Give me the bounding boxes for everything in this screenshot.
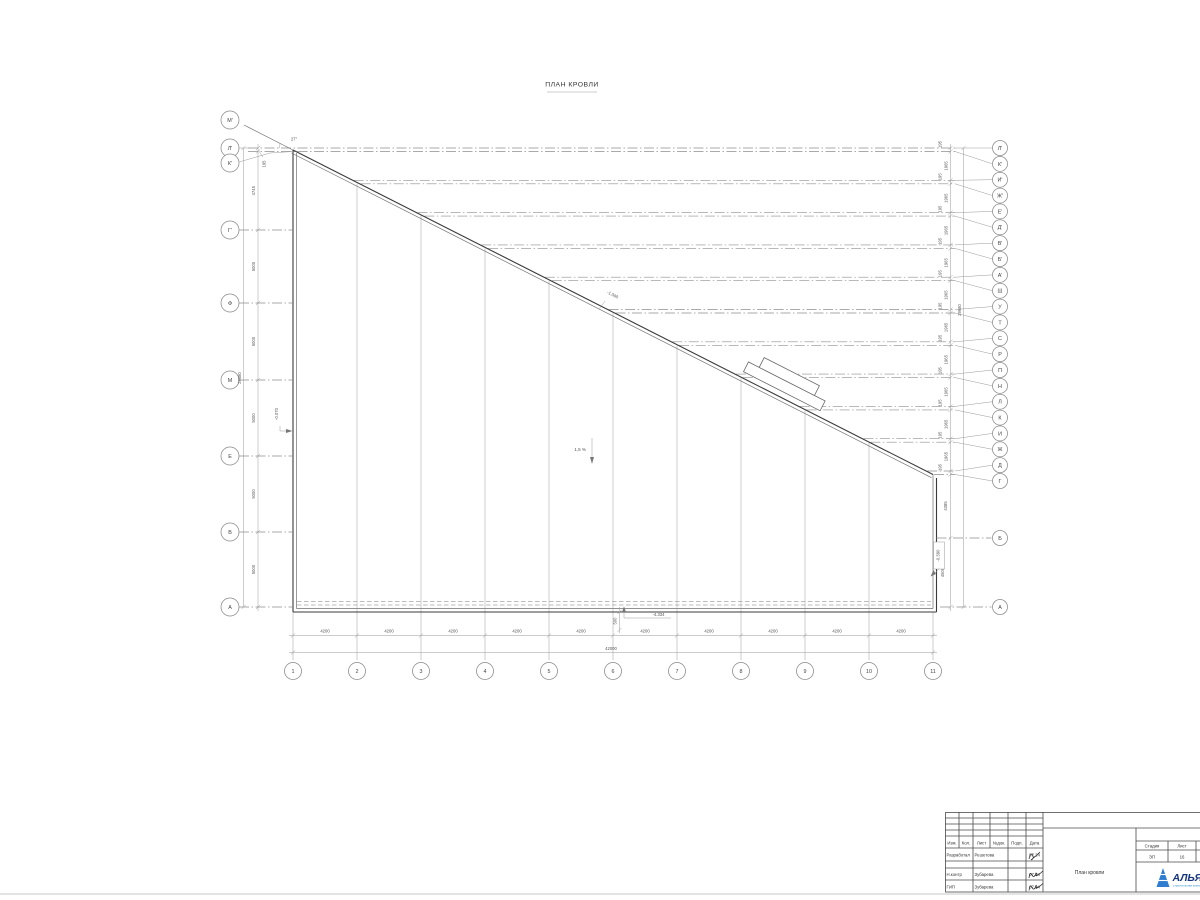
axis-circle-right-label: Л [998, 400, 1002, 406]
axis-leader [955, 433, 993, 438]
axis-circle-bottom-label: 6 [612, 669, 615, 675]
axis-circle-right-label: Ж' [997, 193, 1003, 199]
dim-label: 195 [938, 270, 943, 278]
dim-label: 5000 [251, 489, 256, 499]
dim-label: 4200 [768, 629, 778, 634]
dim-label: 4200 [704, 629, 714, 634]
axis-circle-right-label: С [998, 336, 1002, 342]
dim-label: 1965 [944, 322, 949, 332]
dim-label: 5000 [251, 261, 256, 271]
tb-name-ncontrol: Зубарева [975, 872, 995, 877]
dim-label: 1965 [944, 193, 949, 203]
axis-circle-right-label: П [998, 368, 1002, 374]
axis-leader [955, 410, 993, 418]
tb-name-gip: Зубарева [975, 885, 995, 890]
axis-circle-bottom-label: 8 [740, 669, 743, 675]
dim-label: 195 [938, 334, 943, 342]
dim-label: 4745 [251, 185, 256, 195]
axis-circle-bottom-label: 3 [420, 669, 423, 675]
elevation-arrow [622, 607, 626, 613]
axis-m-prime-leader [244, 125, 293, 150]
axis-leader [955, 180, 993, 181]
dim-label: 1965 [944, 290, 949, 300]
axis-circle-left-label: Л' [228, 146, 233, 152]
axis-leader [955, 216, 993, 227]
dim-label: 195 [262, 160, 267, 168]
dim-label: 1965 [944, 451, 949, 461]
axis-circle-left-label: Ф [228, 301, 232, 307]
dim-label: 195 [938, 205, 943, 213]
axis-circle-right-label: Б' [998, 257, 1003, 263]
tb-role-gip: ГИП [947, 885, 956, 890]
page-title: ПЛАН КРОВЛИ [545, 82, 599, 89]
axis-leader [955, 281, 993, 291]
axis-leader [239, 152, 293, 163]
dim-label: 1965 [944, 225, 949, 235]
elevation-arrow [286, 429, 293, 433]
axis-circle-left-label: В [228, 530, 232, 536]
axis-leader [955, 378, 993, 386]
dim-label: 4200 [576, 629, 586, 634]
dim-label: 4200 [320, 629, 330, 634]
tb-col-ndok: №док. [993, 841, 1006, 846]
dim-label: 4200 [512, 629, 522, 634]
dim-label: 5000 [251, 336, 256, 346]
angle-arc [279, 144, 280, 149]
tb-col-data: Дата [1030, 841, 1040, 846]
tb-role-developer: Разработал [947, 853, 971, 858]
dim-label: 500 [613, 617, 618, 625]
axis-leader [955, 211, 993, 212]
axis-leader [955, 465, 993, 471]
axis-leader [955, 275, 993, 277]
dim-label: 195 [938, 463, 943, 471]
tb-stage-label: Стадия [1145, 844, 1160, 849]
company-logo-icon [1157, 868, 1170, 887]
axis-leader [955, 152, 993, 164]
axis-circle-right-label: Н [998, 384, 1002, 390]
axis-circle-left-label: М' [227, 118, 233, 124]
axis-circle-right-label: Д [998, 463, 1002, 469]
axis-circle-bottom-label: 10 [866, 669, 872, 675]
dim-label: 195 [938, 140, 943, 148]
dim-label: 4200 [640, 629, 650, 634]
axis-circle-right-label: Б [998, 536, 1002, 542]
axis-leader [955, 243, 993, 245]
axis-leader [955, 402, 993, 407]
roof-hatch [744, 352, 831, 411]
axis-circle-right-label: И [998, 431, 1002, 437]
axis-circle-bottom-label: 5 [548, 669, 551, 675]
axis-leader [955, 184, 993, 196]
tb-role-ncontrol: Н.контр [947, 872, 963, 877]
axis-circle-right-label: В' [998, 241, 1003, 247]
company-logo-text: АЛЬЯНС [1172, 872, 1200, 884]
tb-name-developer: Решетова [975, 853, 995, 858]
dim-label: 4200 [448, 629, 458, 634]
axis-leader [955, 248, 993, 259]
axis-leader [955, 475, 993, 481]
axis-circle-bottom-label: 7 [676, 669, 679, 675]
dim-label: 195 [938, 399, 943, 407]
dim-label: 195 [938, 173, 943, 181]
dim-label: 4200 [384, 629, 394, 634]
dim-label: 4200 [896, 629, 906, 634]
axis-circle-right-label: Д' [998, 225, 1003, 231]
dim-label: 4385 [943, 501, 948, 511]
slope-annotation: 1,5 % [574, 447, 586, 452]
axis-leader [955, 370, 993, 374]
roof-plan-drawing: ПЛАН КРОВЛИЛ'К'И'Ж'Е'Д'В'Б'А'ШУТСРПНЛКИЖ… [0, 0, 1200, 900]
axis-circle-left-label: Е [228, 454, 232, 460]
dim-label: 5000 [251, 413, 256, 423]
axis-circle-left-label: М [228, 378, 233, 384]
company-logo-subtext: строительная компания [1173, 884, 1200, 888]
axis-leader [955, 345, 993, 354]
tb-col-kol: Кол. [962, 841, 971, 846]
axis-circle-bottom-label: 9 [804, 669, 807, 675]
elevation-eave: -4.334 [653, 612, 666, 617]
axis-circle-right-label: К' [998, 162, 1002, 168]
tb-doc-title: План кровли [1075, 870, 1105, 876]
dim-label: 195 [938, 366, 943, 374]
dim-label: 4200 [832, 629, 842, 634]
tb-stage-value: ЭП [1149, 855, 1155, 860]
tb-col-list: Лист [977, 841, 986, 846]
dim-label: 42000 [605, 646, 617, 651]
axis-circle-right-label: Р [998, 352, 1002, 358]
axis-circle-left-label: Г' [228, 228, 232, 234]
roof-edge-diagonal-inner [292, 153, 932, 478]
drawing-sheet: ПЛАН КРОВЛИЛ'К'И'Ж'Е'Д'В'Б'А'ШУТСРПНЛКИЖ… [0, 0, 1200, 900]
axis-leader [955, 338, 993, 342]
dim-label: 1965 [944, 419, 949, 429]
axis-circle-right-label: А' [998, 273, 1003, 279]
axis-circle-right-label: Е' [998, 209, 1003, 215]
axis-circle-right-label: А [998, 605, 1002, 611]
dim-label: 1965 [944, 257, 949, 267]
axis-circle-right-label: И' [998, 178, 1003, 184]
dim-label: 195 [938, 237, 943, 245]
dim-label: 5000 [251, 564, 256, 574]
tb-sheet-value: 16 [1180, 855, 1185, 860]
dim-label: 1965 [944, 354, 949, 364]
dim-label: 29680 [957, 304, 962, 316]
axis-circle-bottom-label: 1 [292, 669, 295, 675]
axis-circle-right-label: Ж [998, 447, 1003, 453]
dim-label: 195 [938, 302, 943, 310]
axis-circle-right-label: Ш [998, 289, 1003, 295]
elevation-left: -0.070 [274, 407, 279, 420]
axis-circle-bottom-label: 11 [930, 669, 936, 675]
elevation-slope: -1.090 [606, 290, 619, 300]
tb-sheet-label: Лист [1177, 844, 1186, 849]
axis-circle-right-label: У [998, 304, 1002, 310]
dim-label: 1965 [944, 161, 949, 171]
dim-label: 1965 [944, 387, 949, 397]
angle-annotation: 27° [291, 137, 298, 142]
dim-label: 195 [938, 431, 943, 439]
axis-circle-right-label: Г [999, 479, 1002, 485]
axis-circle-bottom-label: 4 [484, 669, 487, 675]
axis-circle-left-label: А [228, 605, 232, 611]
axis-circle-left-label: К' [228, 161, 232, 167]
title-block: Изм. Кол. Лист №док. Подп. Дата Разработ… [945, 812, 1200, 893]
dim-label: 29680 [237, 372, 242, 384]
tb-col-izm: Изм. [947, 841, 956, 846]
elevation-right: -0.590 [936, 549, 941, 562]
tb-col-podp: Подп. [1011, 841, 1022, 846]
slope-arrow-head [590, 457, 594, 464]
axis-circle-bottom-label: 2 [356, 669, 359, 675]
axis-circle-right-label: Л' [998, 146, 1003, 152]
axis-leader [955, 442, 993, 449]
